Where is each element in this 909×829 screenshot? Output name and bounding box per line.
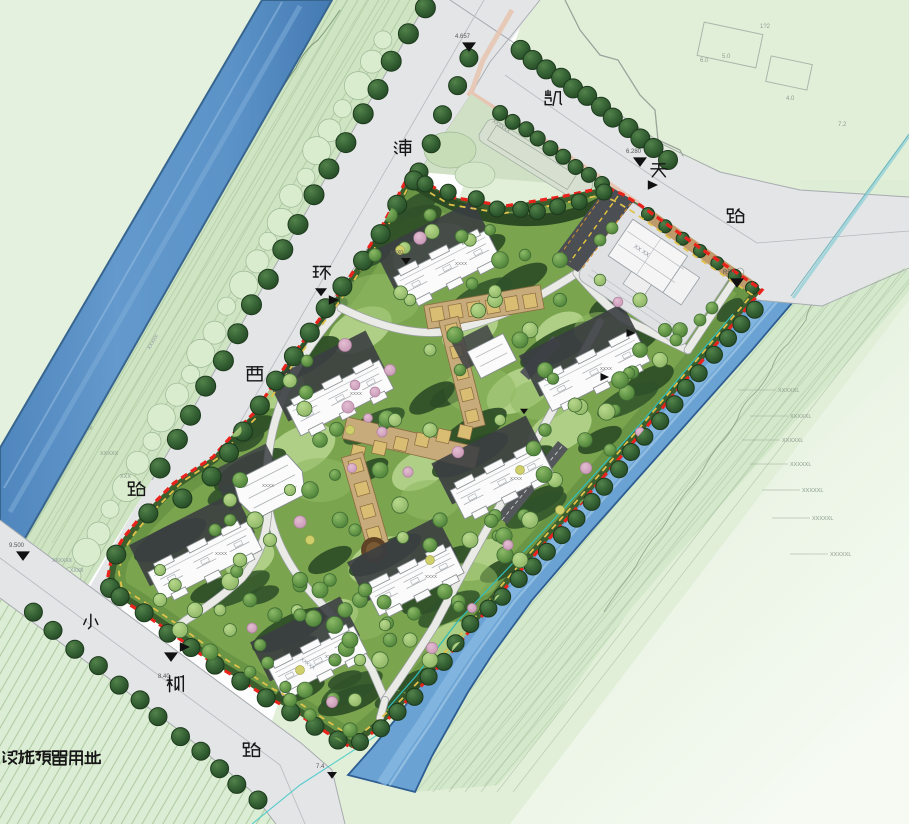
svg-text:XXXXXL: XXXXXL	[790, 462, 811, 468]
svg-text:7.4: 7.4	[316, 764, 325, 770]
svg-text:XXXXXL: XXXXXL	[802, 488, 823, 494]
svg-text:XXXX: XXXX	[325, 654, 337, 659]
svg-text:XXX: XXX	[120, 474, 131, 480]
svg-text:6.0: 6.0	[700, 58, 709, 64]
svg-text:XXXX: XXXX	[510, 476, 522, 481]
svg-text:XXXX: XXXX	[70, 568, 84, 574]
svg-text:XXXXXL: XXXXXL	[782, 438, 803, 444]
svg-text:R50: R50	[723, 270, 735, 276]
svg-text:XXXXXL: XXXXXL	[778, 388, 799, 394]
svg-text:4.657: 4.657	[455, 34, 471, 40]
svg-text:1?2: 1?2	[760, 24, 771, 30]
svg-text:XXXX: XXXX	[455, 261, 467, 266]
svg-text:XXXXXL: XXXXXL	[790, 414, 811, 420]
svg-text:XXXX: XXXX	[215, 551, 227, 556]
svg-text:9.500: 9.500	[9, 543, 25, 549]
svg-text:XXXXXL: XXXXXL	[812, 516, 833, 522]
svg-text:7.2: 7.2	[838, 122, 847, 128]
svg-text:XXXXX: XXXXX	[100, 451, 119, 457]
svg-text:XXXXXX: XXXXXX	[52, 558, 73, 564]
svg-text:5.0: 5.0	[722, 54, 731, 60]
svg-text:XXXX: XXXX	[425, 574, 437, 579]
svg-text:XXXX: XXXX	[350, 391, 362, 396]
svg-text:4.5X0: 4.5X0	[390, 250, 403, 256]
svg-text:4.0: 4.0	[786, 96, 795, 102]
svg-text:8.40: 8.40	[158, 674, 170, 680]
svg-text:XXXXXL: XXXXXL	[830, 552, 851, 558]
svg-text:XXXX: XXXX	[262, 483, 274, 488]
svg-text:XXXX: XXXX	[600, 366, 612, 371]
svg-text:6.280: 6.280	[626, 149, 642, 155]
